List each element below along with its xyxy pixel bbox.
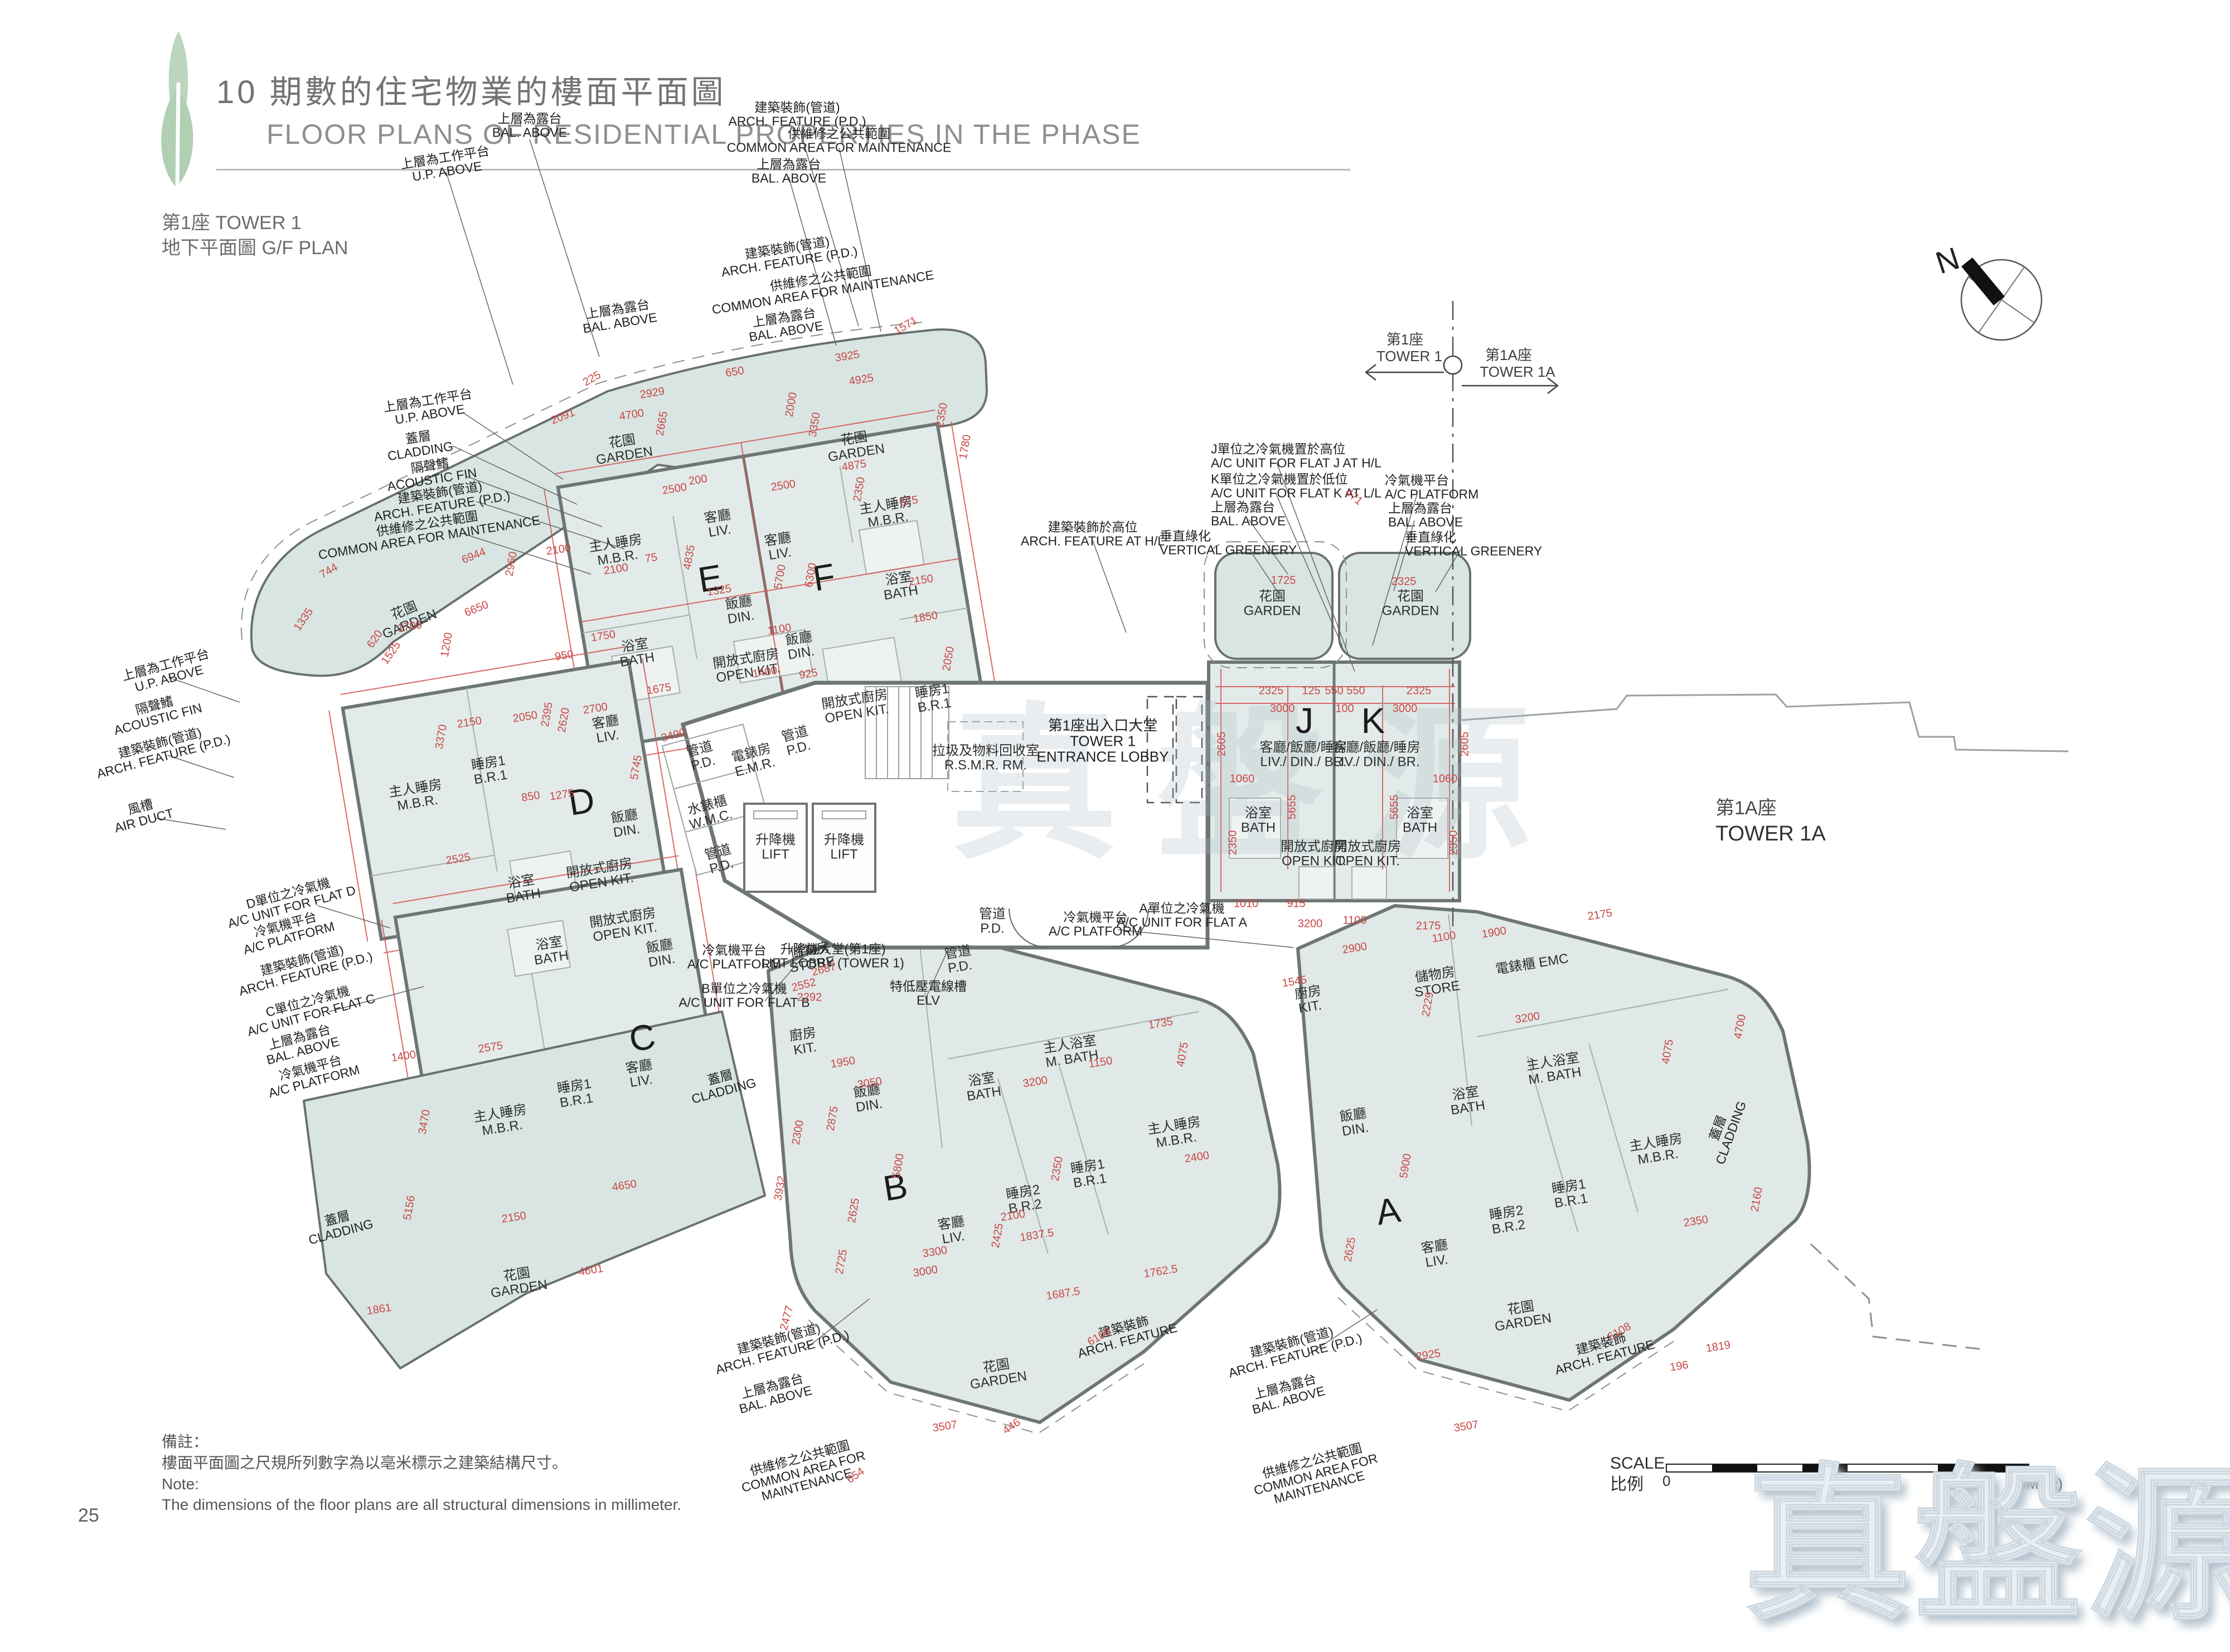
room-label: 睡房1B.R.1: [1551, 1177, 1589, 1211]
dim-label: 1861: [366, 1302, 392, 1318]
dim-label: 4075: [1660, 1038, 1676, 1065]
callout-label: 上層為露台BAL. ABOVE: [1211, 500, 1286, 527]
dim-label: 2350: [1050, 1155, 1066, 1182]
dim-label: 1950: [830, 1055, 856, 1071]
room-label: 飯廳DIN.: [610, 808, 641, 840]
room-label: 儲物房STORE: [1411, 964, 1461, 1000]
dim-label: 1780: [958, 434, 974, 460]
callout-label: 上層為露台BAL. ABOVE: [752, 157, 826, 184]
dim-label: 4835: [682, 544, 698, 571]
dim-label: 3000: [912, 1264, 938, 1280]
room-label: 飯廳DIN.: [1339, 1106, 1369, 1139]
dim-label: 2100: [545, 542, 571, 558]
dim-label: 5745: [629, 754, 645, 781]
dim-label: 1850: [912, 610, 938, 625]
room-label: 浴室BATH: [531, 934, 570, 968]
dim-label: 650: [725, 365, 745, 380]
dim-label: 2725: [834, 1248, 850, 1275]
dim-label: 1837.5: [1019, 1227, 1055, 1245]
room-label: 升降機LIFT: [755, 833, 796, 861]
room-label: 花園GARDEN: [1382, 589, 1439, 618]
dim-label: 2925: [1415, 1348, 1441, 1363]
callout-label: 建築裝飾ARCH. FEATURE: [1073, 1307, 1179, 1360]
dim-label: 3507: [932, 1419, 958, 1435]
dim-label: 2525: [445, 852, 471, 867]
dim-label: 2350: [1227, 830, 1239, 856]
dim-label: 1060: [1230, 773, 1255, 785]
dim-label: 4075: [1175, 1041, 1191, 1068]
dim-label: 2350: [1448, 830, 1460, 856]
callout-label: 蓋層CLADDING: [303, 1203, 375, 1247]
callout-label: A單位之冷氣機A/C UNIT FOR FLAT A: [1117, 901, 1247, 929]
dim-label: 2350: [852, 476, 868, 503]
dim-label: 196: [1669, 1359, 1689, 1374]
dim-label: 1060: [1433, 773, 1458, 785]
room-label: 管道P.D.: [685, 739, 718, 774]
callout-label: 上層為工作平台U.P. ABOVE: [400, 144, 493, 185]
tower-1a-zh: 第1A座: [1715, 796, 1826, 820]
room-label: 廚房KIT.: [788, 1026, 819, 1058]
dim-label: 4925: [848, 372, 874, 388]
dim-label: 2175: [1416, 920, 1441, 932]
dim-label: 1100: [1431, 930, 1457, 945]
dim-label: 4650: [611, 1178, 637, 1194]
callout-label: B單位之冷氣機A/C UNIT FOR FLAT B: [678, 982, 809, 1009]
dim-label: 2050: [512, 710, 538, 725]
room-label: 浴室BATH: [503, 872, 542, 906]
callout-label: 蓋層CLADDING: [686, 1062, 758, 1106]
dim-label: 1675: [646, 682, 672, 697]
dim-label: 2575: [477, 1040, 503, 1056]
callout-label: 垂直綠化VERTICAL GREENERY: [1160, 529, 1297, 556]
dim-label: 2350: [1683, 1214, 1709, 1230]
dim-label: 3000: [1270, 703, 1295, 715]
room-label: 浴室BATH: [1447, 1084, 1486, 1117]
callout-label: J單位之冷氣機置於高位A/C UNIT FOR FLAT J AT H/L: [1211, 442, 1381, 469]
dim-label: 100: [1335, 703, 1354, 715]
dim-label: 2625: [1342, 1236, 1359, 1263]
unit-letter-C: C: [627, 1017, 658, 1059]
dim-label: 2500: [661, 482, 687, 497]
room-label: 開放式廚房OPEN KIT.: [1334, 839, 1401, 868]
dim-label: 2325: [1392, 576, 1417, 587]
room-label: 花園GARDEN: [1244, 589, 1301, 618]
dim-label: 2050: [941, 645, 957, 672]
dim-label: 3300: [922, 1245, 948, 1260]
room-label: 睡房2B.R.2: [1489, 1203, 1527, 1237]
dim-label: 2160: [1749, 1186, 1766, 1213]
callout-label: 建築裝飾ARCH. FEATURE: [1550, 1324, 1656, 1377]
dim-label: 1750: [590, 629, 616, 644]
room-label: 電錶櫃 EMC: [1495, 951, 1569, 977]
callout-label: 上層為露台BAL. ABOVE: [1388, 501, 1463, 528]
dim-label: 5700: [773, 563, 789, 590]
room-label: 睡房1B.R.1: [471, 754, 509, 787]
room-label: 廚房KIT.: [1293, 984, 1324, 1016]
room-label: 升降機LIFT: [824, 833, 864, 861]
room-label: 管道P.D.: [703, 842, 736, 877]
unit-letter-J: J: [1296, 702, 1313, 740]
callout-label: 供維修之公共範圍COMMON AREA FORMAINTENANCE: [1249, 1438, 1383, 1511]
plan-labels-layer: EFDCBAJK花園GARDEN主人睡房M.B.R.客廳LIV.飯廳DIN.浴室…: [0, 0, 2230, 1576]
brochure-page: { "header": { "title_zh": "10 期數的住宅物業的樓面…: [0, 0, 2230, 1576]
dim-label: 2900: [1341, 941, 1368, 956]
dim-label: 1700: [396, 619, 423, 635]
dim-label: 3925: [834, 349, 860, 365]
tower-1a-en: TOWER 1A: [1715, 820, 1826, 848]
dim-label: 3200: [1298, 918, 1323, 930]
room-label: 睡房1B.R.1: [914, 682, 953, 715]
dim-label: 2325: [1259, 685, 1284, 697]
callout-label: 特低壓電線槽ELV: [890, 979, 967, 1007]
dim-label: 75: [644, 552, 658, 566]
room-label: 浴室BATH: [1403, 806, 1437, 834]
room-label: 開放式廚房OPEN KIT.: [821, 687, 891, 726]
dim-label: 550: [1325, 685, 1343, 697]
dim-label: 1100: [1342, 915, 1366, 926]
room-label: 飯廳DIN.: [784, 630, 815, 662]
dim-label: 4875: [841, 458, 867, 474]
dim-label: 3470: [417, 1109, 433, 1135]
callout-label: 建築裝飾於高位ARCH. FEATURE AT H/L: [1021, 520, 1165, 547]
callout-label: 建築裝飾(管道)ARCH. FEATURE (P.D.): [1223, 1318, 1363, 1379]
dim-label: 4700: [618, 407, 644, 423]
callout-label: 上層為露台BAL. ABOVE: [746, 305, 824, 344]
dim-label: 4601: [578, 1263, 604, 1279]
callout-label: 建築裝飾(管道)ARCH. FEATURE (P.D.): [728, 100, 866, 128]
dim-label: 950: [554, 649, 574, 663]
room-label: 飯廳DIN.: [645, 937, 676, 970]
callout-label: 蓋層CLADDING: [1700, 1095, 1749, 1167]
watermark: 真盤源: [1744, 1410, 2230, 1652]
dim-label: 2350: [934, 402, 951, 429]
dim-label: 2625: [846, 1197, 862, 1224]
dim-label: 2500: [770, 478, 796, 494]
dim-label: 1150: [1088, 1055, 1113, 1071]
dim-label: 1819: [1705, 1339, 1731, 1355]
room-label: 客廳LIV.: [1420, 1238, 1451, 1270]
dim-label: 2325: [1407, 685, 1432, 697]
dim-label: 2100: [603, 562, 629, 577]
dim-label: 1762.5: [1143, 1264, 1179, 1281]
room-label: 浴室BATH: [963, 1070, 1002, 1104]
dim-label: 5655: [1389, 795, 1400, 820]
dim-label: 446: [1001, 1417, 1023, 1437]
dim-label: 2605: [1216, 732, 1228, 757]
dim-label: 225: [581, 369, 603, 388]
callout-label: 供維修之公共範圍COMMON AREA FOR MAINTENANCE: [727, 127, 952, 154]
room-label: 客廳LIV.: [937, 1214, 967, 1247]
dim-label: 550: [1346, 685, 1365, 697]
callout-label: 上層為工作平台U.P. ABOVE: [382, 387, 476, 428]
unit-letter-K: K: [1361, 702, 1385, 740]
dim-label: 2400: [1184, 1150, 1210, 1165]
callout-label: 第1座出入口大堂TOWER 1ENTRANCE LOBBY: [1037, 718, 1169, 764]
room-label: 主人睡房M.B.R.: [1628, 1131, 1686, 1168]
dim-label: 744: [318, 561, 340, 581]
dim-label: 1400: [752, 665, 778, 681]
dim-label: 2960: [504, 551, 520, 577]
room-label: 花園GARDEN: [1491, 1297, 1552, 1334]
dim-label: 2150: [501, 1210, 527, 1226]
room-label: 飯廳DIN.: [724, 594, 755, 626]
dim-label: 2605: [1459, 732, 1471, 757]
dim-label: 675: [899, 494, 919, 509]
dim-label: 1400: [390, 1049, 416, 1065]
callout-label: 建築裝飾(管道)ARCH. FEATURE (P.D.): [91, 718, 231, 780]
dim-label: 200: [688, 473, 708, 488]
room-label: 睡房1B.R.1: [556, 1077, 595, 1110]
dim-label: 1900: [1481, 925, 1507, 941]
dim-label: 2100: [1000, 1208, 1026, 1224]
dim-label: 1325: [706, 583, 732, 599]
dim-label: 2175: [1587, 907, 1613, 923]
room-label: 花園GARDEN: [487, 1264, 548, 1301]
room-label: 管道P.D.: [943, 944, 974, 976]
dim-label: 1735: [1147, 1016, 1174, 1032]
dim-label: 3932: [773, 1175, 789, 1202]
dim-label: 2091: [549, 407, 576, 427]
dim-label: 5655: [1286, 795, 1298, 820]
dim-label: 2229: [1421, 991, 1437, 1018]
dim-label: 2000: [784, 391, 800, 418]
dim-label: 2150: [908, 573, 934, 589]
dim-label: 850: [521, 790, 541, 804]
dim-label: 4700: [1733, 1013, 1749, 1040]
dim-label: 1335: [292, 606, 316, 634]
callout-label: 上層為露台BAL. ABOVE: [1247, 1371, 1326, 1416]
dim-label: 5900: [1398, 1153, 1414, 1179]
dim-label: 1687.5: [1045, 1286, 1081, 1303]
callout-label: 上層為露台BAL. ABOVE: [492, 111, 567, 139]
unit-letter-A: A: [1374, 1191, 1403, 1232]
room-label: 浴室BATH: [1241, 806, 1276, 834]
dim-label: 125: [1302, 685, 1320, 697]
dim-label: 2929: [639, 386, 665, 401]
room-label: 睡房1B.R.1: [1070, 1157, 1108, 1191]
dim-label: 2620: [556, 707, 573, 733]
dim-label: 2150: [456, 715, 482, 731]
dim-label: 3200: [1022, 1075, 1048, 1090]
room-label: 管道P.D.: [979, 907, 1006, 935]
room-label: 客廳LIV.: [763, 531, 794, 563]
dim-label: 1725: [1271, 575, 1296, 586]
dim-label: 1525: [379, 640, 403, 667]
dim-label: 925: [798, 667, 818, 682]
dim-label: 2875: [825, 1105, 841, 1132]
dim-label: 1010: [1234, 898, 1259, 910]
room-label: 花園GARDEN: [593, 430, 653, 468]
room-label: 主人睡房M.B.R.: [473, 1102, 530, 1139]
room-label: 浴室BATH: [617, 636, 656, 669]
room-label: 主人浴室M. BATH: [1525, 1051, 1583, 1087]
dim-label: 3200: [1514, 1010, 1540, 1026]
dim-label: 6650: [463, 599, 490, 620]
dim-label: 915: [1287, 898, 1305, 910]
dim-label: 3370: [434, 723, 450, 750]
dim-label: 5156: [402, 1194, 418, 1221]
callout-label: 垂直綠化VERTICAL GREENERY: [1405, 530, 1542, 557]
dim-label: 2395: [540, 701, 556, 728]
callout-label: 冷氣機平台A/C PLATFORM: [1385, 473, 1478, 501]
dim-label: 2292: [797, 992, 822, 1003]
room-label: 主人睡房M.B.R.: [1147, 1115, 1204, 1151]
dim-label: 3507: [1453, 1419, 1479, 1435]
room-label: 花園GARDEN: [967, 1355, 1027, 1392]
dim-label: 3350: [807, 411, 823, 438]
callout-label: 上層為工作平台U.P. ABOVE: [120, 647, 214, 696]
room-label: 客廳/飯廳/睡房LIV./ DIN./ BR.: [1332, 740, 1420, 769]
dim-label: 1571: [892, 315, 919, 338]
room-label: 開放式廚房OPEN KIT.: [565, 856, 636, 895]
room-label: 客廳LIV.: [703, 508, 734, 540]
callout-label: 上層為露台BAL. ABOVE: [580, 297, 658, 336]
room-label: 管道P.D.: [780, 724, 813, 759]
callout-label: 風槽AIR DUCT: [109, 793, 175, 835]
room-label: 水錶櫃W.M.C.: [684, 793, 734, 832]
dim-label: 3000: [1393, 703, 1418, 715]
dim-label: 6944: [460, 546, 487, 567]
room-label: 主人睡房M.B.R.: [388, 778, 445, 814]
dim-label: 1200: [439, 631, 455, 658]
room-label: 電錶房E.M.R.: [730, 741, 777, 780]
room-label: 客廳LIV.: [591, 713, 622, 746]
tower-1a-label: 第1A座 TOWER 1A: [1715, 796, 1826, 848]
room-label: 拉圾及物料回收室R.S.M.R. RM.: [932, 744, 1039, 772]
dim-label: 3490: [660, 727, 687, 745]
room-label: 開放式廚房OPEN KIT.: [589, 906, 660, 944]
dim-label: 2425: [990, 1222, 1006, 1249]
dim-label: 2300: [791, 1119, 807, 1146]
callout-label: 上層為露台BAL. ABOVE: [734, 1370, 813, 1416]
dim-label: 2665: [655, 410, 671, 437]
room-label: 客廳LIV.: [624, 1058, 655, 1090]
